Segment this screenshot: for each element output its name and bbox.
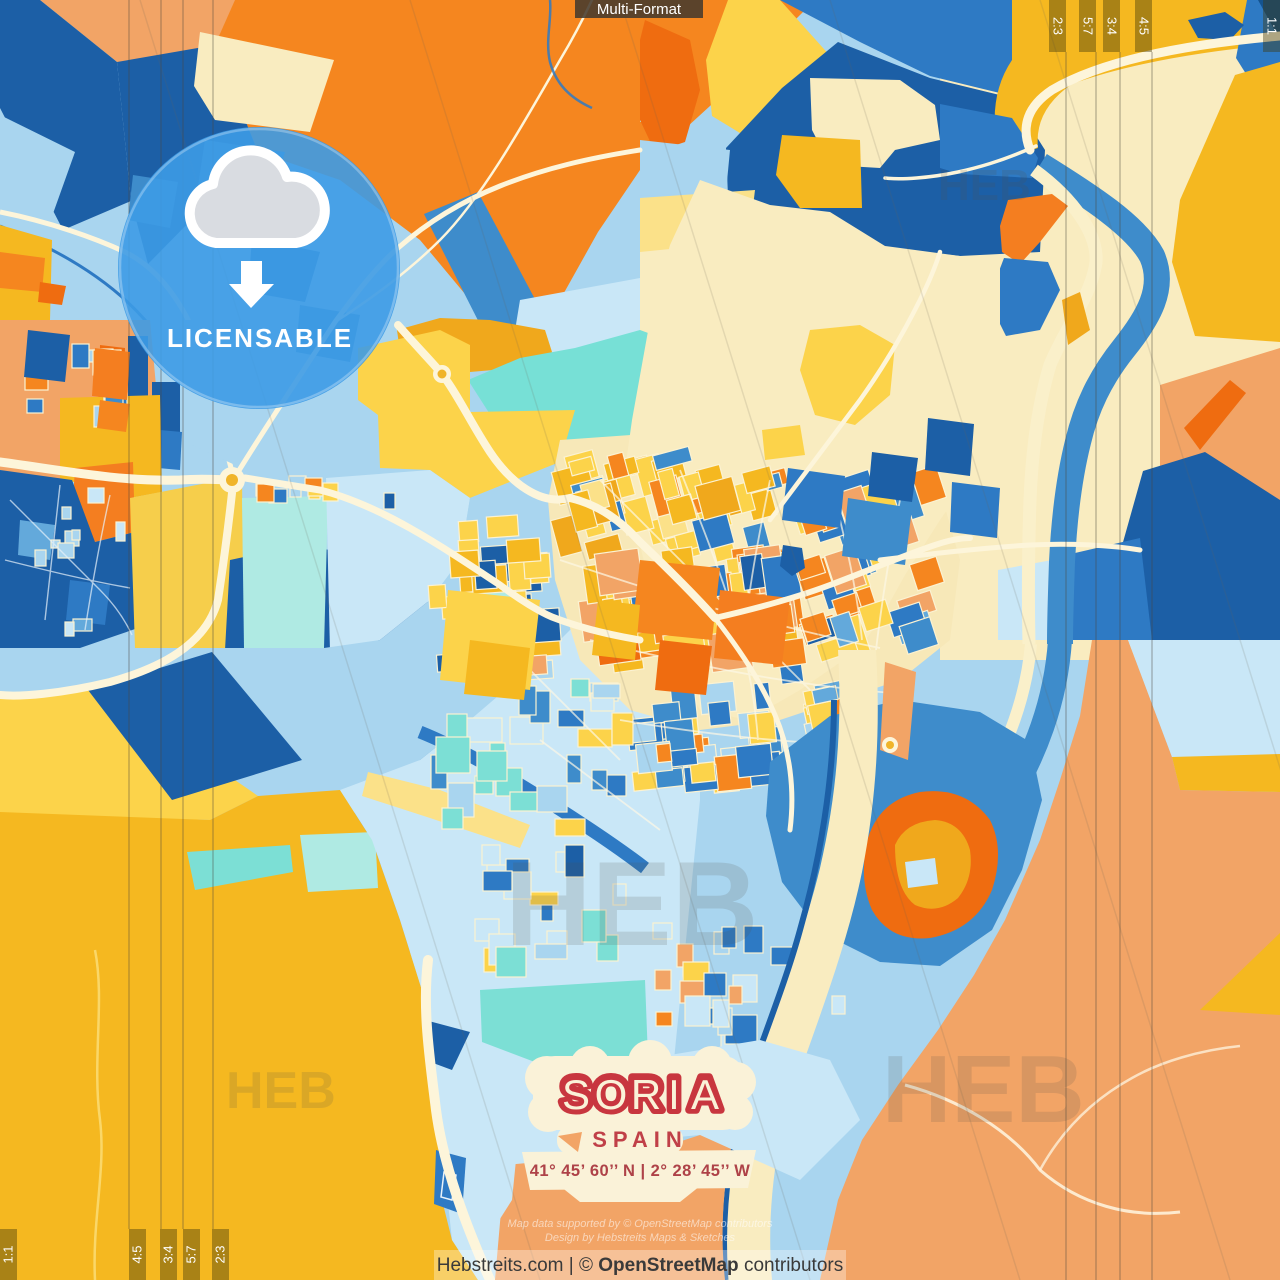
svg-text:Hebstreits.com | © OpenStreetM: Hebstreits.com | © OpenStreetMap contrib… [437, 1255, 843, 1276]
svg-text:Design by Hebstreits Maps & Sk: Design by Hebstreits Maps & Sketches [545, 1232, 736, 1244]
svg-text:R: R [631, 1071, 661, 1118]
svg-text:5:7: 5:7 [184, 1245, 199, 1263]
svg-text:Map data supported by © OpenSt: Map data supported by © OpenStreetMap co… [508, 1218, 773, 1230]
svg-text:HEB: HEB [882, 1036, 1085, 1143]
svg-text:A: A [691, 1071, 719, 1118]
svg-text:2:3: 2:3 [1051, 17, 1066, 35]
svg-text:Multi-Format: Multi-Format [597, 1, 682, 18]
svg-text:3:4: 3:4 [1105, 17, 1120, 35]
svg-text:4:5: 4:5 [130, 1245, 145, 1263]
svg-text:S: S [562, 1071, 590, 1118]
svg-text:5:7: 5:7 [1081, 17, 1096, 35]
svg-text:1:1: 1:1 [1265, 17, 1280, 35]
svg-text:LICENSABLE: LICENSABLE [167, 323, 353, 353]
svg-text:HEB: HEB [938, 161, 1031, 210]
svg-text:I: I [668, 1071, 680, 1118]
svg-text:HEB: HEB [226, 1062, 336, 1120]
svg-text:4:5: 4:5 [1137, 17, 1152, 35]
svg-text:O: O [595, 1071, 628, 1118]
svg-text:41° 45’ 60’’ N | 2° 28’: 41° 45’ 60’’ N | 2° 28’ 45’’ W [530, 1162, 751, 1180]
svg-text:1:1: 1:1 [1, 1245, 16, 1263]
svg-text:HEB: HEB [505, 837, 758, 971]
svg-text:2:3: 2:3 [213, 1245, 228, 1263]
svg-text:3:4: 3:4 [161, 1245, 176, 1263]
svg-text:SPAIN: SPAIN [592, 1127, 688, 1152]
